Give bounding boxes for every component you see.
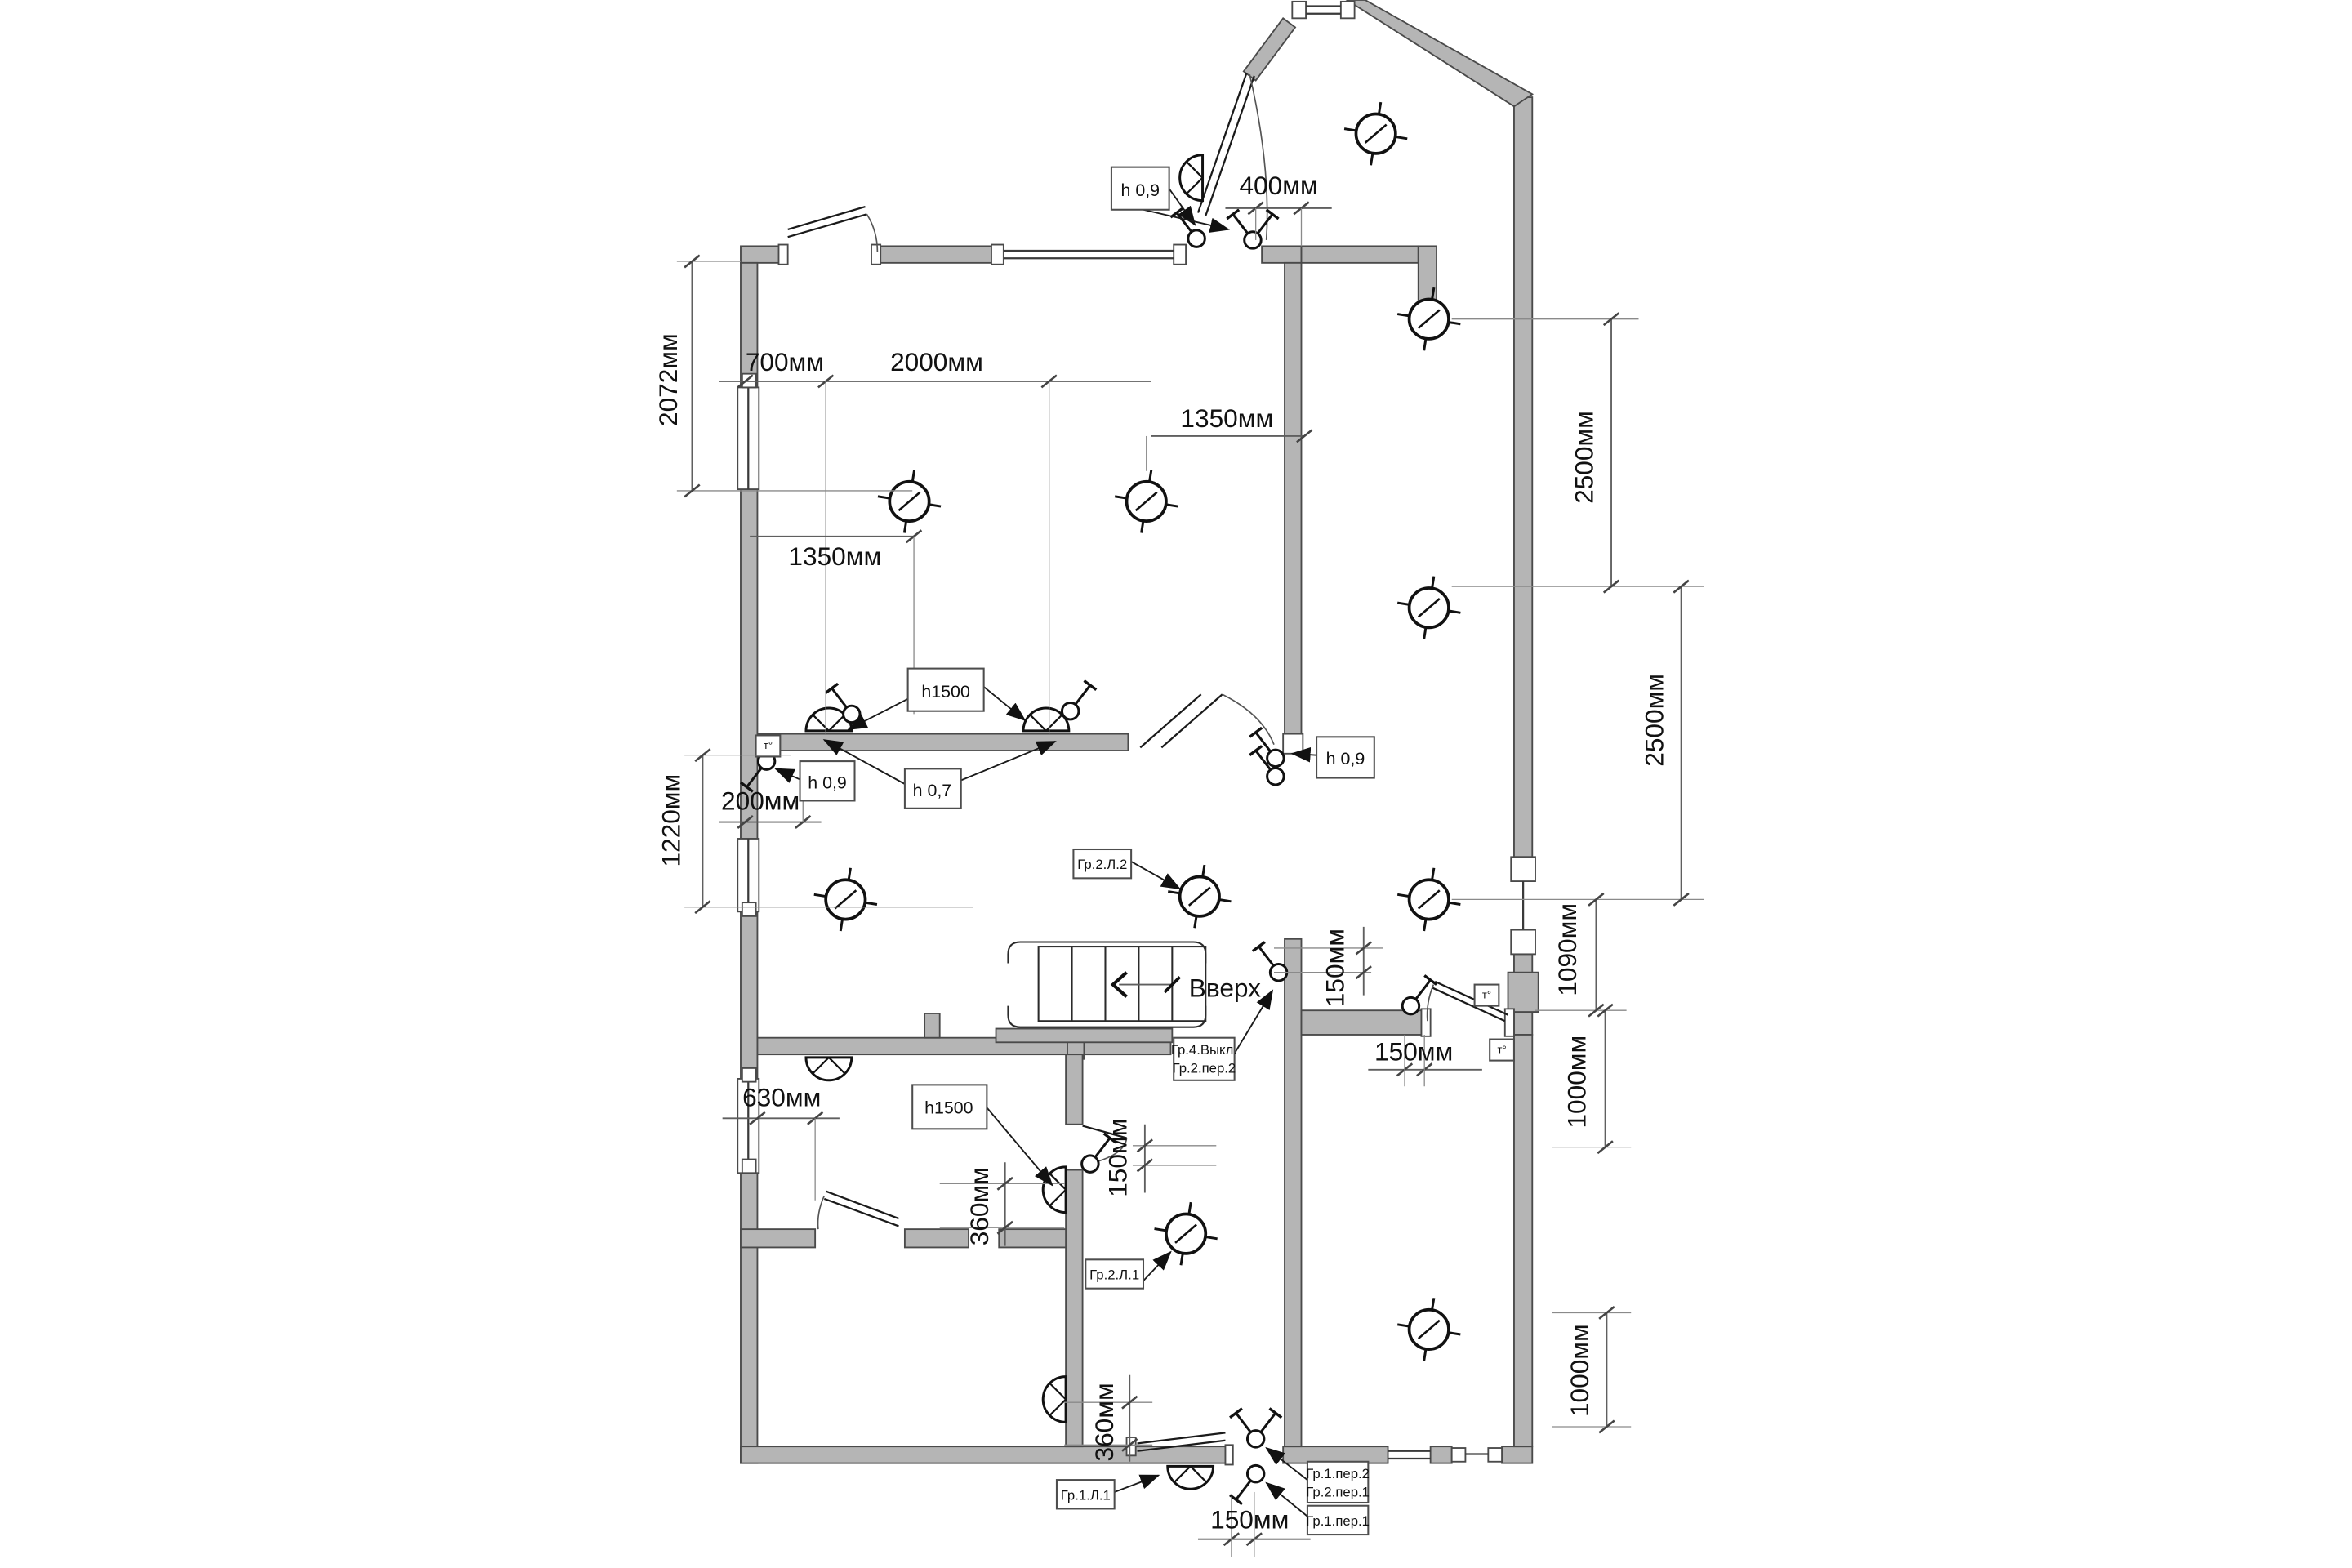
wall-segment (741, 1229, 815, 1247)
callout-gr4-line1: Гр.4.Выкл. (1171, 1042, 1237, 1058)
radiator-tie (742, 1068, 756, 1082)
dim-2072: 2072мм (653, 333, 683, 426)
wall-segment (1285, 263, 1301, 734)
callout-per-line2: Гр.2.пер.1 (1306, 1485, 1370, 1500)
thermostat-label: т° (1482, 988, 1491, 1000)
switch-icon (1227, 210, 1278, 248)
door-swing (1249, 74, 1267, 240)
switch-icon (1062, 680, 1096, 719)
door-jamb (1505, 1009, 1514, 1036)
dim-360-upper: 360мм (964, 1167, 994, 1245)
wall-lights (806, 155, 1214, 1489)
dim-1090: 1090мм (1552, 903, 1582, 996)
dim-400: 400мм (1239, 171, 1317, 200)
wall-light-icon (1043, 1167, 1066, 1213)
switch-icon (1230, 1409, 1281, 1447)
wall-segment (1502, 1446, 1532, 1463)
callout-gr2l1: Гр.2.Л.1 (1089, 1267, 1139, 1283)
wall-segment (1066, 1170, 1082, 1447)
bay-wall-left (1244, 18, 1295, 80)
dim-700: 700мм (746, 347, 824, 376)
dim-150-inner: 150мм (1103, 1119, 1133, 1197)
ceiling-light-icon (1392, 1293, 1465, 1365)
callout-h09-right: h 0,9 (1326, 749, 1365, 768)
callout-h09-left: h 0,9 (808, 773, 847, 793)
wall-segment (741, 246, 780, 262)
windows (737, 2, 1535, 1462)
wall-light-icon (806, 1058, 852, 1080)
switch-icon (1230, 1465, 1264, 1503)
wall-segment (1431, 1446, 1452, 1463)
ceiling-lights (809, 97, 1466, 1366)
ceiling-light-icon (809, 863, 882, 936)
door-jamb (871, 245, 880, 265)
callout-gr2l2: Гр.2.Л.2 (1077, 857, 1127, 872)
dim-150-bottom: 150мм (1210, 1505, 1289, 1535)
window (1511, 857, 1535, 881)
callout-h1500-bottom: h1500 (924, 1098, 973, 1118)
door-leaf (826, 1192, 898, 1218)
door-leaf (824, 1199, 898, 1226)
dim-1350-right: 1350мм (1180, 403, 1273, 433)
window-jamb (991, 245, 1004, 265)
ceiling-light-icon (1110, 465, 1183, 537)
dim-1350-left: 1350мм (788, 541, 881, 571)
wall-light-icon (1043, 1377, 1066, 1423)
wall-segment (1301, 246, 1418, 262)
door-jamb (1225, 1445, 1232, 1464)
switch-icon (1249, 728, 1284, 766)
stairs-up-label: Вверх (1189, 973, 1261, 1002)
dim-2500-lower: 2500мм (1639, 674, 1668, 767)
radiator-tie (742, 1160, 756, 1174)
thermostat-label: т° (764, 739, 773, 751)
ceiling-light-icon (1163, 860, 1236, 933)
callout-gr1l1: Гр.1.Л.1 (1061, 1487, 1111, 1503)
radiator-tie (742, 902, 756, 916)
thermostat-label: т° (1497, 1043, 1506, 1055)
window (1511, 930, 1535, 955)
doors (788, 73, 1508, 1464)
wall-segment (1262, 246, 1301, 262)
door-jamb (778, 245, 787, 265)
window-jamb (1292, 2, 1306, 18)
wall-segment (880, 246, 993, 262)
floor-plan-svg: Вверх (0, 0, 2352, 1568)
switch-icon (1402, 975, 1437, 1013)
dim-2000: 2000мм (890, 347, 983, 376)
staircase: Вверх (1008, 942, 1261, 1027)
window-jamb (1174, 245, 1186, 265)
callout-per-line1: Гр.1.пер.2 (1306, 1466, 1370, 1481)
wall-segment (1066, 1054, 1082, 1125)
ceiling-light-icon (1392, 571, 1465, 644)
door-jamb (1421, 1009, 1430, 1036)
dim-2500-upper: 2500мм (1570, 411, 1599, 504)
wall-segment (1301, 1010, 1421, 1035)
wall-light-icon (1168, 1466, 1214, 1489)
ceiling-light-icon (873, 465, 946, 537)
ceiling-light-icon (1149, 1197, 1222, 1270)
dim-150-door-right: 150мм (1374, 1037, 1453, 1067)
wall-segment (1514, 1035, 1532, 1446)
door-jamb (1283, 734, 1303, 754)
radiator-tie (1452, 1448, 1466, 1462)
wall-segment (924, 1013, 940, 1038)
walls (741, 0, 1539, 1463)
door-swing (1223, 694, 1274, 744)
dim-150-stairs: 150мм (1321, 929, 1350, 1007)
callout-h09-top: h 0,9 (1121, 180, 1160, 200)
wall-segment (1285, 939, 1301, 1446)
callout-h07: h 0,7 (913, 781, 952, 800)
bay-wall-right (1347, 0, 1532, 106)
dim-630: 630мм (742, 1082, 821, 1111)
callout-gr1per1: Гр.1.пер.1 (1306, 1513, 1370, 1529)
dim-1000-upper: 1000мм (1561, 1036, 1591, 1129)
stair-landing (996, 1029, 1173, 1043)
dim-360-lower: 360мм (1089, 1383, 1119, 1461)
wall-segment (1283, 1446, 1388, 1463)
wall-light-icon (1180, 155, 1203, 201)
window-jamb (1341, 2, 1355, 18)
wall-segment (741, 1173, 757, 1463)
door-swing (818, 1196, 825, 1229)
dim-1000-lower: 1000мм (1565, 1324, 1594, 1417)
callout-h1500-top: h1500 (921, 682, 970, 702)
ceiling-light-icon (1339, 97, 1412, 170)
wall-segment (999, 1229, 1066, 1247)
dim-1220: 1220мм (657, 774, 686, 867)
wall-segment (905, 1229, 969, 1247)
wall-segment (757, 734, 1128, 751)
dim-200: 200мм (721, 786, 800, 816)
wall-segment (1508, 973, 1539, 1012)
callout-gr4-line2: Гр.2.пер.2 (1173, 1060, 1236, 1076)
radiator-tie (1488, 1448, 1502, 1462)
wall-segment (1514, 97, 1532, 857)
wall-segment (741, 911, 757, 1079)
